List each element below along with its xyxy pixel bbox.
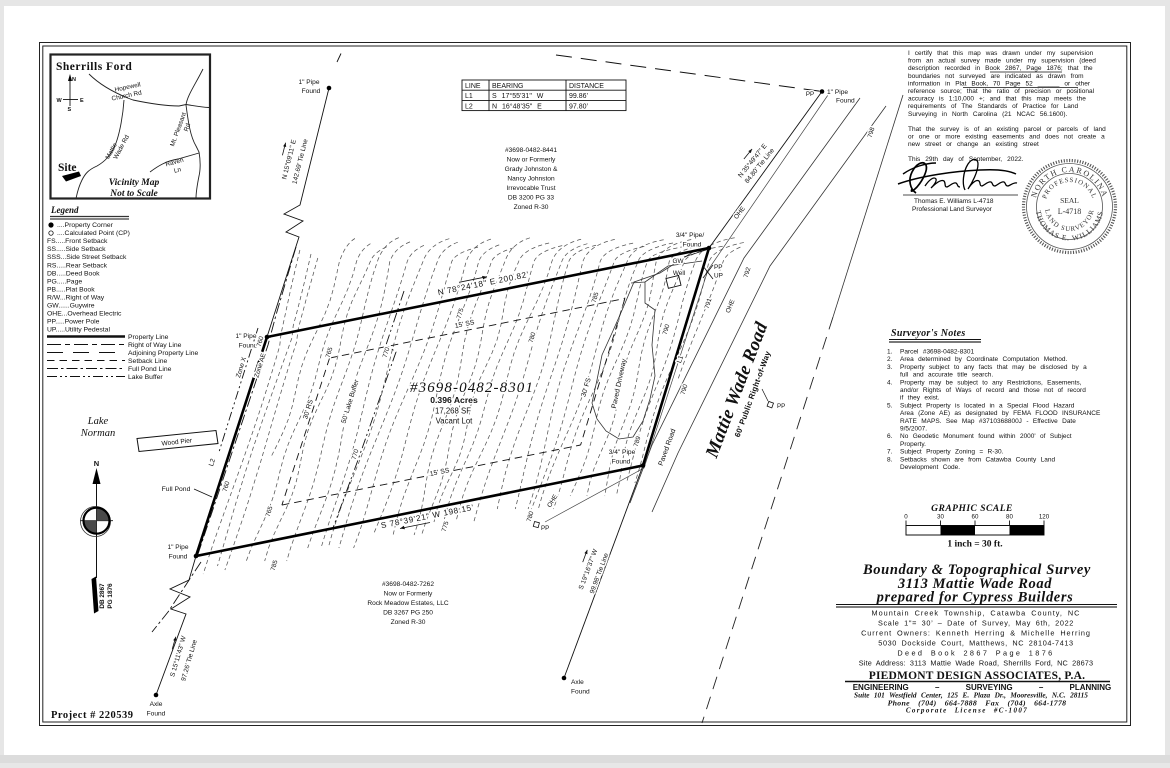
svg-text:#3698-0482-8441: #3698-0482-8441: [505, 147, 557, 154]
svg-text:LINE: LINE: [465, 83, 481, 90]
svg-text:Vicinity Map: Vicinity Map: [109, 178, 160, 188]
svg-text:Site Address: 3113 Mattie Wade: Site Address: 3113 Mattie Wade Road, She…: [859, 659, 1093, 668]
svg-text:Subject Property Zoning = R-30: Subject Property Zoning = R-30.: [900, 449, 1004, 456]
svg-text:1" Pipe: 1" Pipe: [298, 79, 319, 86]
svg-text:N: N: [72, 77, 76, 83]
svg-text:SEAL: SEAL: [1060, 196, 1079, 205]
svg-text:L1: L1: [465, 93, 473, 100]
svg-text:17,268 SF: 17,268 SF: [435, 407, 471, 416]
svg-text:N 16°48’35" E: N 16°48’35" E: [492, 102, 542, 110]
svg-text:requirements of The Standards: requirements of The Standards of Practic…: [908, 103, 1078, 110]
svg-text:Sherrills Ford: Sherrills Ford: [56, 61, 132, 73]
svg-text:Found: Found: [612, 459, 631, 466]
svg-text:Development Code.: Development Code.: [900, 464, 960, 471]
svg-text:prepared for Cypress Builders: prepared for Cypress Builders: [875, 590, 1074, 606]
svg-text:Irrevocable Trust: Irrevocable Trust: [506, 185, 555, 192]
svg-text:Found: Found: [147, 711, 166, 718]
svg-text:1 inch = 30 ft.: 1 inch = 30 ft.: [947, 540, 1002, 550]
svg-text:5.: 5.: [887, 402, 893, 409]
svg-text:Setback Line: Setback Line: [128, 358, 168, 365]
svg-text:DB 3267 PG 250: DB 3267 PG 250: [383, 610, 433, 617]
svg-text:Corporate License #C-1007: Corporate License #C-1007: [906, 707, 1028, 715]
svg-text:DB.....Deed Book: DB.....Deed Book: [47, 270, 100, 277]
svg-text:RS.....Rear Setback: RS.....Rear Setback: [47, 262, 108, 269]
svg-text:Setbacks shown are from Catawb: Setbacks shown are from Catawba County L…: [900, 456, 1055, 463]
svg-text:or one or more existing easeme: or one or more existing easements and do…: [908, 134, 1105, 141]
svg-text:Lake Buffer: Lake Buffer: [128, 374, 163, 381]
svg-text:Found: Found: [836, 98, 855, 105]
svg-text:Not to Scale: Not to Scale: [109, 189, 158, 199]
svg-text:Property subject to any facts: Property subject to any facts that may b…: [900, 364, 1087, 371]
svg-text:120: 120: [1039, 514, 1050, 521]
svg-text:1.: 1.: [887, 349, 893, 356]
svg-text:from an actual survey made und: from an actual survey made under my supe…: [908, 58, 1096, 65]
svg-text:PP: PP: [541, 525, 549, 532]
svg-text:UP: UP: [714, 273, 723, 280]
svg-text:E: E: [80, 98, 84, 104]
svg-text:PB.....Plat Book: PB.....Plat Book: [47, 286, 95, 293]
svg-text:3/4" Pipe: 3/4" Pipe: [609, 449, 636, 456]
svg-text:Zoned R-30: Zoned R-30: [514, 204, 549, 211]
svg-text:That the survey is of an exist: That the survey is of an existing parcel…: [908, 126, 1106, 133]
svg-text:This 29th day of September, 20: This 29th day of September, 2022.: [908, 156, 1024, 163]
svg-text:Vacant Lot: Vacant Lot: [436, 417, 474, 426]
svg-text:BEARING: BEARING: [492, 83, 524, 90]
svg-text:S: S: [68, 107, 72, 113]
svg-text:Found: Found: [302, 88, 321, 95]
svg-text:DB 2867: DB 2867: [99, 583, 106, 609]
svg-text:S 17°55’31" W: S 17°55’31" W: [492, 92, 544, 100]
svg-text:3.: 3.: [887, 364, 893, 371]
svg-text:PP: PP: [777, 403, 785, 410]
svg-text:Scale 1"= 30’ – Date of Su: Scale 1"= 30’ – Date of Survey, May 6th,…: [878, 619, 1074, 628]
svg-text:Axle: Axle: [150, 701, 163, 708]
svg-text:full and accurate title search: full and accurate title search.: [900, 372, 993, 379]
svg-text:DISTANCE: DISTANCE: [569, 83, 604, 90]
svg-text:1" Pipe: 1" Pipe: [827, 89, 848, 96]
svg-text:Project # 220539: Project # 220539: [51, 710, 133, 721]
svg-text:0: 0: [904, 514, 908, 521]
svg-text:Thomas E. Williams L-4718: Thomas E. Williams L-4718: [914, 198, 994, 205]
svg-text:I certify that this map was dr: I certify that this map was drawn under …: [908, 50, 1094, 57]
svg-text:80: 80: [1006, 514, 1013, 521]
svg-text:Deed Book 2867 Page 1876: Deed Book 2867 Page 1876: [897, 649, 1054, 658]
svg-text:Full Pond Line: Full Pond Line: [128, 366, 172, 373]
svg-text:5030 Dockside Court, Matthews,: 5030 Dockside Court, Matthews, NC 28104-…: [878, 639, 1073, 648]
svg-text:PIEDMONT DESIGN ASSOCIATES, P.: PIEDMONT DESIGN ASSOCIATES, P.A.: [869, 670, 1085, 682]
svg-text:information in Plat Book, 70: information in Plat Book, 70 Page 52 ___…: [908, 80, 1091, 87]
svg-text:PP: PP: [806, 91, 814, 98]
svg-text:N: N: [94, 459, 99, 468]
svg-text:Property may be subject to any: Property may be subject to any Restricti…: [900, 379, 1082, 386]
svg-text:Found: Found: [571, 689, 590, 696]
svg-text:Property.: Property.: [900, 441, 926, 448]
svg-text:7.: 7.: [887, 449, 893, 456]
svg-text:L-4718: L-4718: [1058, 207, 1082, 216]
svg-text:boundaries not surveyed are in: boundaries not surveyed are indicated as…: [908, 73, 1084, 80]
svg-text:60: 60: [972, 514, 979, 521]
svg-text:Professional Land Surveyor: Professional Land Surveyor: [912, 206, 993, 213]
svg-text:Surveyor's Notes: Surveyor's Notes: [891, 328, 966, 339]
svg-text:#3698-0482-7262: #3698-0482-7262: [382, 581, 434, 588]
svg-text:SSS...Side Street Setback: SSS...Side Street Setback: [47, 254, 127, 261]
svg-text:Subject Property is located in: Subject Property is located in a Special…: [900, 402, 1075, 409]
svg-text:....Property Corner: ....Property Corner: [57, 222, 114, 229]
svg-text:Current Owners: Kenneth Herrin: Current Owners: Kenneth Herring & Michel…: [861, 629, 1091, 638]
svg-text:Now or Formerly: Now or Formerly: [384, 591, 433, 598]
svg-text:99.86’: 99.86’: [569, 93, 589, 100]
svg-text:Full Pond: Full Pond: [162, 486, 191, 493]
svg-text:PP.....Power Pole: PP.....Power Pole: [47, 319, 100, 326]
svg-text:reference source; that the rat: reference source; that the ratio of prec…: [908, 88, 1095, 95]
svg-text:R/W...Right of Way: R/W...Right of Way: [47, 294, 105, 301]
svg-text:4.: 4.: [887, 379, 893, 386]
svg-text:PG.....Page: PG.....Page: [47, 278, 82, 285]
svg-text:Norman: Norman: [80, 428, 115, 439]
svg-text:3/4" Pipe/: 3/4" Pipe/: [676, 232, 705, 239]
svg-text:OHE...Overhead Electric: OHE...Overhead Electric: [47, 311, 122, 318]
svg-text:description recorded in Book 2: description recorded in Book 2867, Page …: [908, 65, 1093, 72]
svg-text:....Calculated Point (CP): ....Calculated Point (CP): [57, 230, 130, 237]
svg-text:Surveying in North Carolina (2: Surveying in North Carolina (21 NCAC 56.…: [908, 111, 1068, 118]
svg-text:Site: Site: [58, 162, 77, 174]
svg-text:W: W: [57, 98, 63, 104]
svg-text:No Geodetic Monument found wit: No Geodetic Monument found within 2000' …: [900, 433, 1072, 440]
svg-text:97.80’: 97.80’: [569, 103, 589, 110]
svg-text:Legend: Legend: [50, 205, 79, 215]
svg-text:#3698-0482-8301: #3698-0482-8301: [410, 380, 534, 396]
svg-text:Right of Way Line: Right of Way Line: [128, 342, 182, 349]
svg-text:L2: L2: [465, 103, 473, 110]
svg-text:Found: Found: [683, 242, 702, 249]
svg-text:30: 30: [937, 514, 944, 521]
svg-text:Adjoining Property Line: Adjoining Property Line: [128, 350, 198, 357]
svg-text:8.: 8.: [887, 456, 893, 463]
svg-text:Area determined by Coordinate: Area determined by Coordinate Computatio…: [900, 356, 1067, 363]
svg-text:if they exist.: if they exist.: [900, 395, 940, 402]
svg-text:1" Pipe: 1" Pipe: [235, 333, 256, 340]
svg-text:Lake: Lake: [87, 416, 109, 427]
svg-text:Zoned R-30: Zoned R-30: [391, 619, 426, 626]
svg-text:GW......Guywire: GW......Guywire: [47, 303, 95, 310]
svg-text:Grady Johnston &: Grady Johnston &: [505, 166, 558, 173]
svg-text:Parcel #3698-0482-8301: Parcel #3698-0482-8301: [900, 349, 975, 356]
svg-text:Now or Formerly: Now or Formerly: [507, 157, 556, 164]
svg-text:Area (Zone AE) as designated b: Area (Zone AE) as designated by FEMA FLO…: [900, 410, 1101, 417]
svg-text:PP: PP: [714, 264, 723, 271]
svg-text:9/5/2007.: 9/5/2007.: [900, 426, 927, 433]
svg-text:Axle: Axle: [571, 679, 584, 686]
svg-text:RATE MAPS. See Map #3710368800: RATE MAPS. See Map #3710368800J - Effect…: [900, 418, 1076, 425]
svg-text:GW: GW: [672, 258, 684, 265]
svg-text:Found: Found: [169, 554, 188, 561]
svg-text:6.: 6.: [887, 433, 893, 440]
svg-text:Nancy Johnston: Nancy Johnston: [507, 176, 555, 183]
svg-text:and/or Rights of Ways of recor: and/or Rights of Ways of record and thos…: [900, 387, 1086, 394]
svg-text:Mountain Creek Township, Cataw: Mountain Creek Township, Catawba County,…: [872, 609, 1081, 618]
svg-text:Property Line: Property Line: [128, 334, 169, 341]
svg-text:Rock Meadow Estates, LLC: Rock Meadow Estates, LLC: [367, 600, 449, 607]
svg-text:new street or change an existi: new street or change an existing street: [908, 141, 1039, 148]
svg-text:1" Pipe: 1" Pipe: [167, 544, 188, 551]
svg-text:0.396 Acres: 0.396 Acres: [430, 395, 478, 405]
svg-text:DB 3200 PG 33: DB 3200 PG 33: [508, 195, 555, 202]
svg-text:GRAPHIC SCALE: GRAPHIC SCALE: [931, 504, 1013, 514]
svg-text:accuracy is 1:10,000 +; and th: accuracy is 1:10,000 +; and that this ma…: [908, 96, 1086, 103]
svg-text:FS.....Front Setback: FS.....Front Setback: [47, 238, 108, 245]
svg-text:SS.....Side Setback: SS.....Side Setback: [47, 246, 106, 253]
svg-text:UP.....Utility Pedestal: UP.....Utility Pedestal: [47, 327, 110, 334]
svg-text:PG 1876: PG 1876: [107, 583, 114, 609]
svg-text:2.: 2.: [887, 356, 893, 363]
